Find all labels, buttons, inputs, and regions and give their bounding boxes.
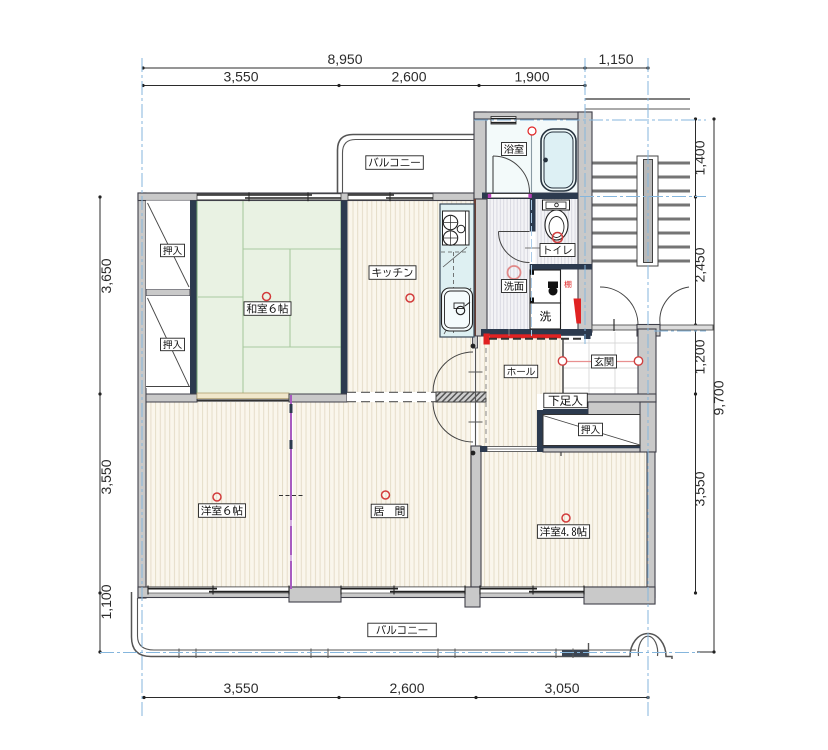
svg-text:3,550: 3,550 <box>98 459 114 494</box>
svg-text:2,600: 2,600 <box>389 680 424 696</box>
svg-text:1,400: 1,400 <box>692 140 708 175</box>
svg-text:1,150: 1,150 <box>598 51 633 67</box>
svg-text:1,900: 1,900 <box>514 69 549 85</box>
svg-text:3,650: 3,650 <box>98 258 114 293</box>
svg-text:8,950: 8,950 <box>327 51 362 67</box>
svg-text:1,100: 1,100 <box>98 584 114 619</box>
svg-text:2,450: 2,450 <box>692 247 708 282</box>
svg-text:3,050: 3,050 <box>544 680 579 696</box>
svg-text:9,700: 9,700 <box>711 380 727 415</box>
svg-text:3,550: 3,550 <box>223 69 258 85</box>
svg-text:2,600: 2,600 <box>391 69 426 85</box>
svg-text:3,550: 3,550 <box>692 471 708 506</box>
svg-text:1,200: 1,200 <box>692 339 708 374</box>
svg-text:3,550: 3,550 <box>223 680 258 696</box>
